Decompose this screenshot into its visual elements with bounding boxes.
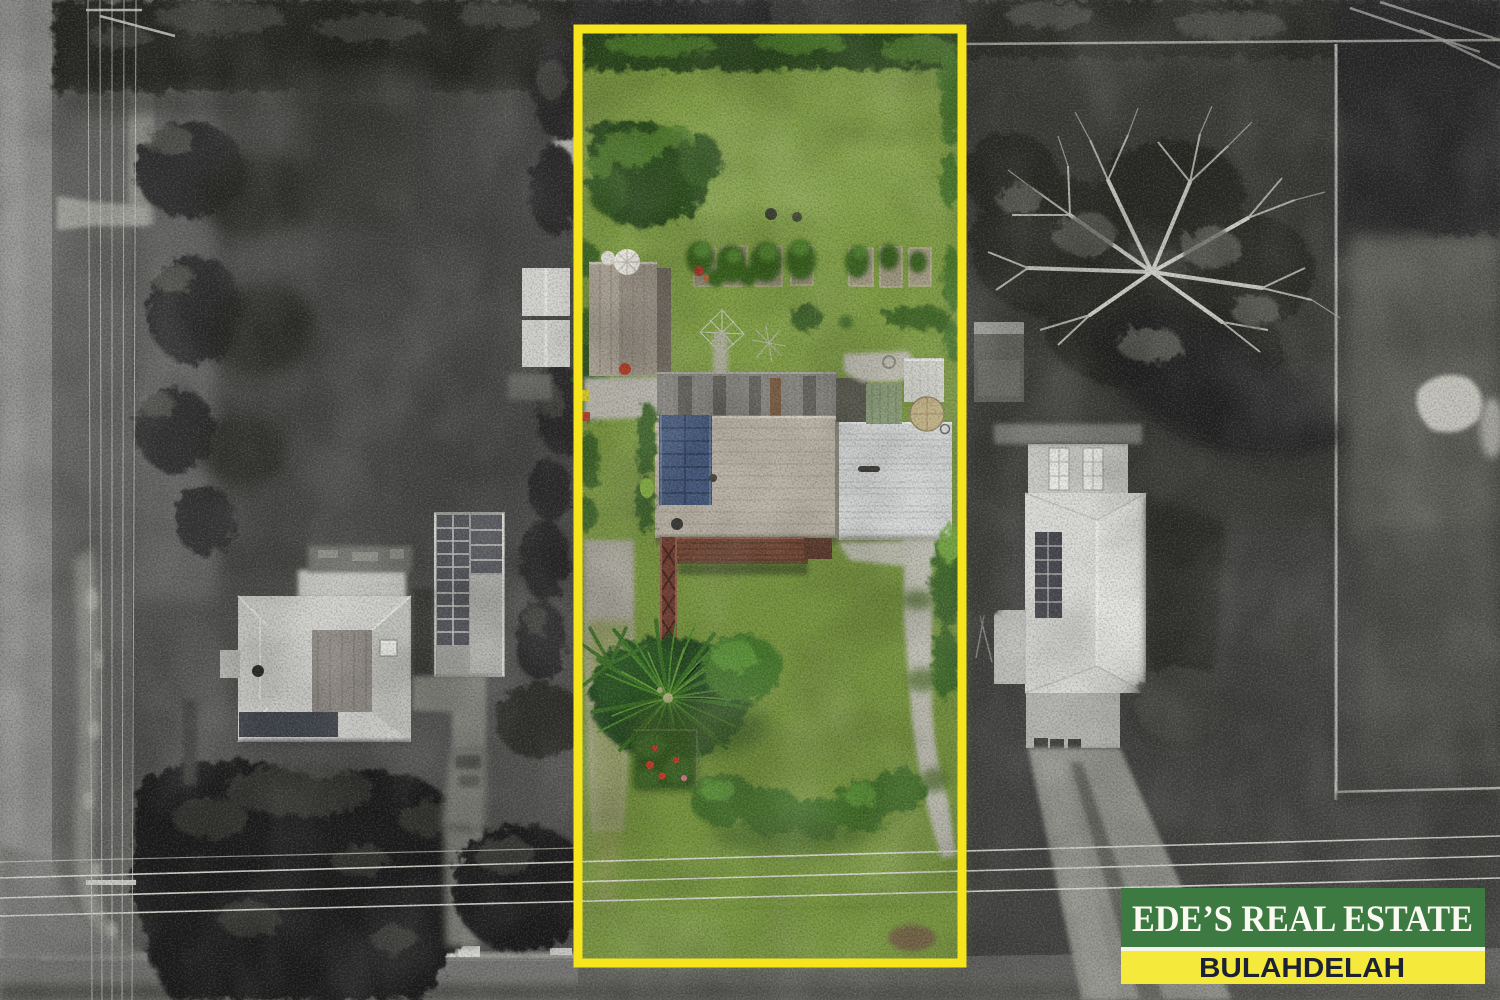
svg-text:BULAHDELAH: BULAHDELAH (1199, 952, 1405, 983)
svg-text:EDE’S REAL ESTATE: EDE’S REAL ESTATE (1132, 899, 1473, 940)
